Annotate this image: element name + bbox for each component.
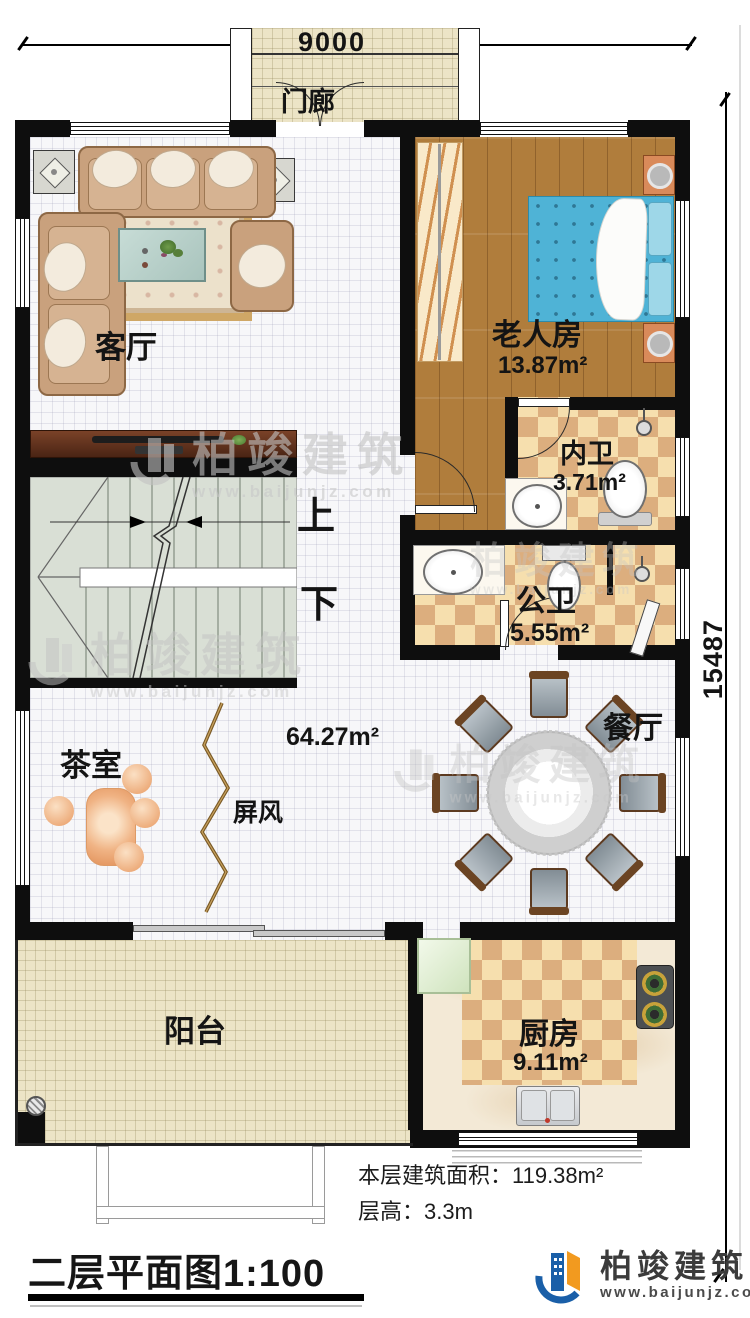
sink-basin	[521, 1090, 547, 1121]
brand-logo-icon	[532, 1246, 590, 1304]
room-label-tea: 茶室	[60, 750, 122, 783]
wall-segment	[460, 922, 675, 940]
sliding-door	[133, 925, 265, 932]
room-area-elder: 13.87m²	[498, 353, 587, 378]
wall-segment	[230, 120, 276, 137]
balcony-edge	[15, 1143, 413, 1146]
bed-pillow	[648, 202, 672, 256]
coffee-table	[118, 228, 206, 282]
tea-cushion	[122, 764, 152, 794]
porch-column	[458, 28, 480, 122]
porch-column	[230, 28, 252, 122]
stairs-down-label: 下	[300, 586, 338, 626]
wall-segment	[675, 517, 690, 568]
console-item	[92, 436, 224, 443]
console-item	[135, 446, 183, 454]
dimension-label-top: 9000	[298, 28, 366, 56]
title-underline-thin	[30, 1305, 362, 1307]
window	[15, 710, 30, 886]
shower-head	[636, 420, 652, 436]
wall-segment	[675, 318, 690, 437]
screen-label: 屏风	[233, 800, 283, 826]
sink-faucet	[545, 1118, 550, 1123]
wall-segment	[30, 678, 297, 688]
refrigerator	[417, 938, 471, 994]
wall-segment	[415, 530, 675, 545]
shower-head	[634, 566, 650, 582]
brand-name: 柏竣建筑	[600, 1249, 750, 1284]
toilet-tank	[542, 545, 586, 561]
side-table	[33, 150, 75, 194]
wall-segment	[570, 397, 675, 410]
dining-table	[487, 731, 611, 855]
nightstand	[643, 155, 675, 195]
room-area-inner-bath: 3.71m²	[553, 470, 626, 494]
wall-segment	[15, 120, 70, 137]
railing-beam	[96, 1206, 325, 1219]
sliding-door	[253, 930, 385, 937]
page-title: 二层平面图1:100	[28, 1242, 325, 1297]
dining-chair	[530, 868, 568, 910]
stove-burner	[642, 971, 667, 996]
wall-segment	[400, 645, 500, 660]
room-label-balcony: 阳台	[164, 1016, 226, 1049]
room-area-kitchen: 9.11m²	[513, 1050, 588, 1075]
bathroom-sink	[423, 549, 483, 595]
shower-stem	[643, 408, 645, 422]
stove-burner	[642, 1002, 667, 1027]
room-label-porch: 门廊	[281, 88, 335, 116]
tea-cushion	[114, 842, 144, 872]
window	[15, 218, 30, 308]
wall-segment	[15, 922, 133, 940]
table-plant	[160, 240, 176, 254]
title-underline	[28, 1294, 364, 1301]
wardrobe-pole	[438, 144, 441, 360]
wall-segment	[675, 857, 690, 1140]
window	[675, 200, 690, 318]
wall-segment	[15, 137, 30, 218]
tea-cushion	[44, 796, 74, 826]
stairs	[30, 477, 297, 678]
wall-segment	[364, 120, 480, 137]
room-label-dining: 餐厅	[603, 713, 663, 745]
sink-basin	[550, 1090, 575, 1121]
room-label-inner-bath: 内卫	[560, 440, 614, 468]
wall-segment	[15, 308, 30, 710]
window	[675, 737, 690, 857]
room-label-living: 客厅	[95, 332, 157, 365]
dimension-label-right: 15487	[699, 594, 727, 724]
shower-stem	[641, 556, 643, 568]
dining-chair	[530, 676, 568, 718]
window	[675, 437, 690, 517]
wall-segment	[15, 1112, 45, 1146]
wall-segment	[30, 458, 297, 477]
tea-cushion	[130, 798, 160, 828]
window	[480, 122, 628, 135]
room-area-public-bath: 5.55m²	[510, 620, 589, 646]
stairs-up-label: 上	[297, 498, 335, 538]
room-label-elder: 老人房	[492, 320, 582, 352]
nightstand	[643, 323, 675, 363]
window	[675, 568, 690, 640]
floor-plan-sheet: 柏竣建筑 www.baijunjz.com 柏竣建筑 www.baijunjz.…	[0, 0, 750, 1318]
window	[458, 1132, 638, 1146]
wall-segment	[675, 640, 690, 737]
wall-segment	[558, 645, 675, 660]
console-plant	[232, 435, 246, 445]
room-label-kitchen: 厨房	[519, 1019, 579, 1051]
brand-url: www.baijunjz.com	[600, 1284, 750, 1301]
floor-height-note: 层高：3.3m	[358, 1194, 473, 1226]
wall-segment	[628, 120, 690, 137]
wall-segment	[400, 135, 415, 455]
wall-segment	[607, 545, 613, 595]
dining-chair	[437, 774, 479, 812]
balcony-edge	[15, 940, 18, 1146]
table-cup	[142, 248, 148, 254]
hall-area-label: 64.27m²	[286, 724, 379, 750]
wall-segment	[675, 137, 690, 200]
bed-pillow	[648, 262, 672, 316]
room-label-public-bath: 公卫	[516, 586, 576, 618]
floor-drain	[26, 1096, 46, 1116]
dining-chair	[619, 774, 661, 812]
window	[70, 122, 230, 135]
brand-logo: 柏竣建筑 www.baijunjz.com	[532, 1246, 750, 1304]
inner-bath-door	[518, 398, 570, 407]
page-edge-line	[739, 25, 741, 1270]
floor-area-note: 本层建筑面积：119.38m²	[358, 1158, 603, 1190]
